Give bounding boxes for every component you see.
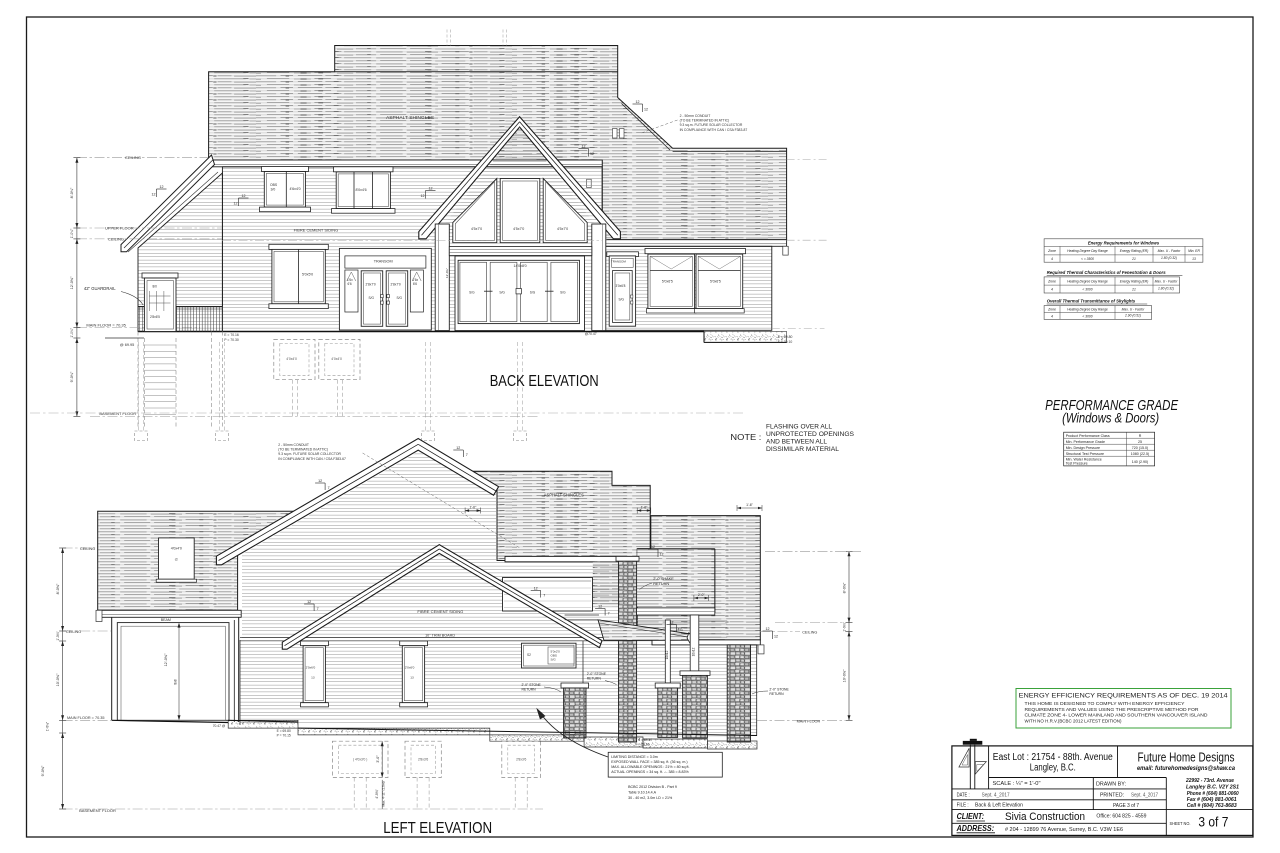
svg-text:9'-0¾": 9'-0¾" xyxy=(41,765,45,776)
svg-text:Cell # (604) 763-8683: Cell # (604) 763-8683 xyxy=(1187,803,1237,809)
svg-text:9.3 sq.m. FUTURE SOLAR COLLECT: 9.3 sq.m. FUTURE SOLAR COLLECTOR xyxy=(680,123,743,127)
svg-text:1'-6": 1'-6" xyxy=(470,506,478,510)
svg-text:12: 12 xyxy=(590,152,594,156)
svg-text:5'0x6'5: 5'0x6'5 xyxy=(710,280,721,284)
svg-text:10'-0¾": 10'-0¾" xyxy=(843,669,847,682)
svg-text:1'-0¼": 1'-0¼" xyxy=(56,631,60,641)
svg-text:LIMITING DISTANCE = 3.0m: LIMITING DISTANCE = 3.0m xyxy=(611,755,658,759)
svg-text:4: 4 xyxy=(1051,257,1053,261)
svg-text:13: 13 xyxy=(1192,257,1196,261)
svg-text:9'-0¼": 9'-0¼" xyxy=(70,371,74,382)
svg-text:14'0x8'0: 14'0x8'0 xyxy=(514,264,527,268)
svg-text:(TO BE TERMINATED IN ATTIC): (TO BE TERMINATED IN ATTIC) xyxy=(278,448,328,452)
svg-text:FLASHING OVER ALL: FLASHING OVER ALL xyxy=(766,423,832,430)
svg-text:6'6: 6'6 xyxy=(348,282,352,286)
svg-text:5'0x6'5: 5'0x6'5 xyxy=(662,280,673,284)
svg-text:FIBRE CEMENT SIDING: FIBRE CEMENT SIDING xyxy=(294,228,339,233)
svg-text:Min. ER: Min. ER xyxy=(1188,249,1200,253)
svg-text:(Windows & Doors): (Windows & Doors) xyxy=(1062,411,1159,426)
svg-text:P = 70.15: P = 70.15 xyxy=(277,734,291,738)
svg-text:12: 12 xyxy=(242,194,246,198)
svg-text:THIS HOME IS DESIGNED TO COMPL: THIS HOME IS DESIGNED TO COMPLY WITH ENE… xyxy=(1025,701,1185,706)
svg-text:UNPROTECTED OPENINGS: UNPROTECTED OPENINGS xyxy=(766,431,855,438)
svg-text:1'-6": 1'-6" xyxy=(641,506,649,510)
svg-text:E = 69.80: E = 69.80 xyxy=(277,729,291,733)
svg-text:2'-0" STONE: 2'-0" STONE xyxy=(522,683,542,687)
svg-text:1'-0¼": 1'-0¼" xyxy=(70,327,74,337)
svg-text:Office: 604 825 - 4559: Office: 604 825 - 4559 xyxy=(1096,814,1146,820)
svg-text:3 of 7: 3 of 7 xyxy=(1198,813,1228,829)
svg-text:6'6: 6'6 xyxy=(413,282,417,286)
svg-text:12: 12 xyxy=(582,145,586,149)
svg-text:MAX. ALLOWABLE OPENINGS : 21%: MAX. ALLOWABLE OPENINGS : 21% = 80 sq.ft… xyxy=(611,765,689,769)
svg-text:email: futurehomedesigns@shaw.: email: futurehomedesigns@shaw.ca xyxy=(1137,765,1235,772)
svg-text:Energy Requirements for Window: Energy Requirements for Windows xyxy=(1088,241,1160,246)
svg-text:IN COMPLIANCE WITH CAN / CSA F: IN COMPLIANCE WITH CAN / CSA F383-67 xyxy=(278,457,346,461)
svg-text:@ 69.95: @ 69.95 xyxy=(120,343,134,347)
svg-text:Overall Thermal Transmittance: Overall Thermal Transmittance of Skyligh… xyxy=(1047,299,1136,304)
svg-text:S/G: S/G xyxy=(551,658,557,662)
svg-text:Back & Left Elevation: Back & Left Elevation xyxy=(975,803,1023,809)
svg-text:8'-0¾": 8'-0¾" xyxy=(843,582,847,593)
svg-text:Langley B.C. V2Y 2S1: Langley B.C. V2Y 2S1 xyxy=(1186,784,1239,790)
svg-text:10x12: 10x12 xyxy=(665,650,669,659)
svg-text:SCALE : ¼" = 1'-0": SCALE : ¼" = 1'-0" xyxy=(993,781,1041,787)
svg-text:MAIN FLOOR: MAIN FLOOR xyxy=(797,719,821,723)
svg-text:S/G: S/G xyxy=(397,296,403,300)
svg-text:East Lot : 21754 - 88th. Avenu: East Lot : 21754 - 88th. Avenue xyxy=(993,752,1113,763)
svg-text:IN COMPLIANCE WITH CAN / CSA F: IN COMPLIANCE WITH CAN / CSA F383-87 xyxy=(680,128,748,132)
svg-text:10'-0¾": 10'-0¾" xyxy=(56,673,60,686)
svg-text:22992 - 73rd. Avenue: 22992 - 73rd. Avenue xyxy=(1185,778,1234,784)
svg-text:T 4 = 69.57: T 4 = 69.57 xyxy=(636,738,653,742)
svg-text:2'8x3'6: 2'8x3'6 xyxy=(516,758,526,762)
svg-text:1'-6": 1'-6" xyxy=(746,503,754,507)
svg-text:4'5x7'0: 4'5x7'0 xyxy=(513,227,524,231)
svg-text:S/G: S/G xyxy=(530,291,536,295)
svg-text:12'-0¾": 12'-0¾" xyxy=(70,276,74,289)
svg-text:2 - 50mm CONDUIT: 2 - 50mm CONDUIT xyxy=(278,443,309,447)
svg-text:12'-0¾": 12'-0¾" xyxy=(445,268,449,278)
svg-text:12: 12 xyxy=(598,605,602,609)
svg-text:FILE :: FILE : xyxy=(957,803,969,809)
svg-text:Product Performance Class: Product Performance Class xyxy=(1066,434,1110,438)
svg-text:1'-0¼": 1'-0¼" xyxy=(70,228,74,238)
svg-text:CLIMATE ZONE 4- LOWER MAINLAND: CLIMATE ZONE 4- LOWER MAINLAND AND SOUTH… xyxy=(1025,713,1209,718)
svg-text:# 204 - 12899 76 Avenue, Surr: # 204 - 12899 76 Avenue, Surrey, B.C. V3… xyxy=(1005,827,1123,833)
svg-text:1'-0¼": 1'-0¼" xyxy=(46,721,50,731)
svg-text:1'-0¼": 1'-0¼" xyxy=(843,622,847,632)
svg-text:720 (15.0): 720 (15.0) xyxy=(1132,446,1148,450)
svg-text:2'-0"SHAKE: 2'-0"SHAKE xyxy=(653,577,674,581)
svg-text:3/0: 3/0 xyxy=(271,187,276,191)
svg-text:P = 70.30: P = 70.30 xyxy=(224,338,239,342)
svg-text:13: 13 xyxy=(410,676,414,680)
svg-text:2'8x7'0: 2'8x7'0 xyxy=(366,282,376,286)
svg-text:RETURN: RETURN xyxy=(653,582,669,586)
svg-text:12: 12 xyxy=(456,446,460,450)
svg-text:8/0: 8/0 xyxy=(153,285,158,289)
svg-text:12: 12 xyxy=(660,553,664,557)
svg-text:OBS: OBS xyxy=(270,183,278,187)
svg-text:RETURN: RETURN xyxy=(587,676,602,680)
svg-text:EXPOSED WALL FACE = 385 sq. ft: EXPOSED WALL FACE = 385 sq. ft. (36 sq. … xyxy=(611,760,687,764)
svg-text:10x12: 10x12 xyxy=(692,647,696,656)
svg-text:BASEMENT FLOOR: BASEMENT FLOOR xyxy=(79,808,116,813)
svg-text:4'0x4'0: 4'0x4'0 xyxy=(331,357,342,361)
svg-text:70.47 @: 70.47 @ xyxy=(213,724,226,728)
svg-text:S/G: S/G xyxy=(469,291,475,295)
svg-text:BCBC 2012 Division B - Part 9: BCBC 2012 Division B - Part 9 xyxy=(628,785,677,789)
svg-text:10" TRIM BOARD: 10" TRIM BOARD xyxy=(425,634,455,638)
svg-text:LEFT ELEVATION: LEFT ELEVATION xyxy=(383,820,492,837)
svg-text:21: 21 xyxy=(1131,288,1136,292)
svg-text:Required Thermal Characteristi: Required Thermal Characteristics of Fene… xyxy=(1047,270,1167,275)
svg-text:Zone: Zone xyxy=(1047,249,1056,253)
svg-text:NOTE :: NOTE : xyxy=(730,432,761,442)
svg-text:Heating Degree Day Range: Heating Degree Day Range xyxy=(1067,249,1108,253)
svg-text:Heating Degree Day Range: Heating Degree Day Range xyxy=(1067,280,1108,284)
svg-text:42" GUARDRAIL: 42" GUARDRAIL xyxy=(84,286,116,291)
svg-text:@: @ xyxy=(175,558,179,562)
svg-text:Heating Degree Day Range: Heating Degree Day Range xyxy=(1067,307,1108,311)
svg-text:Max. U - Factor: Max. U - Factor xyxy=(1155,280,1179,284)
svg-text:Langley, B.C.: Langley, B.C. xyxy=(1030,763,1076,774)
svg-text:Sept. 4_2017: Sept. 4_2017 xyxy=(1131,793,1158,799)
svg-text:Sept. 4_2017: Sept. 4_2017 xyxy=(982,792,1010,798)
svg-text:< = 3500: < = 3500 xyxy=(1081,257,1094,261)
svg-text:S/G: S/G xyxy=(369,296,375,300)
svg-text:2'-0" STONE: 2'-0" STONE xyxy=(769,688,789,692)
svg-text:12'-0¾": 12'-0¾" xyxy=(164,653,168,666)
svg-text:BASEMENT FLOOR: BASEMENT FLOOR xyxy=(99,411,136,416)
svg-text:140 (2.90): 140 (2.90) xyxy=(1132,460,1148,464)
svg-text:Zone: Zone xyxy=(1047,280,1056,284)
svg-text:SHEET NO.: SHEET NO. xyxy=(1170,821,1191,826)
svg-text:12: 12 xyxy=(636,100,640,104)
svg-text:9.3 sq.m. FUTURE SOLAR COLLECT: 9.3 sq.m. FUTURE SOLAR COLLECTOR xyxy=(278,452,341,456)
svg-text:ASPHALT SHINGLES: ASPHALT SHINGLES xyxy=(386,115,434,120)
svg-text:@70.47: @70.47 xyxy=(585,332,597,336)
svg-text:4'6x4'0: 4'6x4'0 xyxy=(290,187,301,191)
svg-text:E = 70.16: E = 70.16 xyxy=(224,333,239,337)
svg-text:4: 4 xyxy=(1051,288,1053,292)
svg-text:7: 7 xyxy=(328,486,330,490)
svg-text:2'0x6'0: 2'0x6'0 xyxy=(405,666,415,670)
svg-text:1080 (22.5): 1080 (22.5) xyxy=(1131,452,1149,456)
svg-text:12: 12 xyxy=(644,108,648,112)
svg-text:Energy Rating (ER): Energy Rating (ER) xyxy=(1120,280,1149,284)
svg-text:2'8x6'5: 2'8x6'5 xyxy=(150,315,160,319)
svg-text:F = 69.66: F = 69.66 xyxy=(636,743,650,747)
svg-text:2 - 50mm CONDUIT: 2 - 50mm CONDUIT xyxy=(680,114,711,118)
svg-text:CLIENT:: CLIENT: xyxy=(957,811,985,821)
svg-text:S/G: S/G xyxy=(619,298,625,302)
svg-text:CEILING: CEILING xyxy=(802,630,817,634)
svg-text:S/G: S/G xyxy=(560,291,566,295)
svg-text:DATE :: DATE : xyxy=(957,792,970,798)
svg-text:12: 12 xyxy=(766,627,770,631)
svg-text:CEILING: CEILING xyxy=(125,155,141,160)
svg-text:(TO BE TERMINATED IN ATTIC): (TO BE TERMINATED IN ATTIC) xyxy=(680,119,730,123)
svg-text:Max. 4'-11" (1.5m): Max. 4'-11" (1.5m) xyxy=(382,781,386,806)
svg-text:Min. Performance Grade: Min. Performance Grade xyxy=(1066,440,1105,444)
svg-text:S/G: S/G xyxy=(499,291,505,295)
svg-text:MAIN FLOOR = 70.35: MAIN FLOOR = 70.35 xyxy=(86,323,126,328)
svg-text:7: 7 xyxy=(608,612,610,616)
svg-text:2.90 (0.51): 2.90 (0.51) xyxy=(1124,313,1141,317)
svg-text:30 - 40 m2, 3.0m LD = 21%: 30 - 40 m2, 3.0m LD = 21% xyxy=(628,796,673,800)
svg-text:8'-0¾": 8'-0¾" xyxy=(56,583,60,594)
svg-text:12: 12 xyxy=(651,545,655,549)
svg-text:RETURN: RETURN xyxy=(522,688,537,692)
svg-text:TRANSOM: TRANSOM xyxy=(611,260,627,264)
svg-text:12: 12 xyxy=(421,194,425,198)
svg-text:4'0x4'0: 4'0x4'0 xyxy=(171,547,182,551)
svg-text:FIBRE CEMENT SIDING: FIBRE CEMENT SIDING xyxy=(417,609,463,614)
svg-text:Table 9.10.14.4.A: Table 9.10.14.4.A xyxy=(628,791,657,795)
svg-text:PAGE 3 of 7: PAGE 3 of 7 xyxy=(1113,803,1139,809)
svg-text:ASPHALT SHINGLES: ASPHALT SHINGLES xyxy=(544,493,584,498)
svg-text:4'5x7'0: 4'5x7'0 xyxy=(557,227,568,231)
svg-text:ADDRESS:: ADDRESS: xyxy=(956,823,995,833)
svg-text:3'0x6'8: 3'0x6'8 xyxy=(616,284,626,288)
svg-text:ENERGY EFFICIENCY REQUIREMEN: ENERGY EFFICIENCY REQUIREMENTS AS OF DEC… xyxy=(1019,692,1228,699)
svg-text:Structural Test Pressure: Structural Test Pressure xyxy=(1066,452,1104,456)
svg-text:12: 12 xyxy=(774,635,778,639)
svg-text:12: 12 xyxy=(234,202,238,206)
svg-text:4: 4 xyxy=(1051,314,1053,318)
svg-text:R: R xyxy=(1139,434,1142,438)
svg-text:3'-0": 3'-0" xyxy=(376,755,380,763)
svg-text:4'5x7'0: 4'5x7'0 xyxy=(471,227,482,231)
svg-text:F = 70.10: F = 70.10 xyxy=(778,340,793,344)
svg-text:Energy Rating (ER): Energy Rating (ER) xyxy=(1120,249,1149,253)
svg-text:12: 12 xyxy=(429,187,433,191)
svg-text:BEAM: BEAM xyxy=(161,618,171,622)
svg-text:Min. Design Pressure: Min. Design Pressure xyxy=(1066,446,1100,450)
svg-text:8'0x4'6: 8'0x4'6 xyxy=(356,188,367,192)
svg-text:MAIN FLOOR = 70.35: MAIN FLOOR = 70.35 xyxy=(67,716,104,720)
svg-text:E = 69.80: E = 69.80 xyxy=(778,335,793,339)
svg-text:8'-0¼": 8'-0¼" xyxy=(70,187,74,198)
svg-text:8x8: 8x8 xyxy=(174,679,178,684)
svg-text:12: 12 xyxy=(160,185,164,189)
svg-text:DRAWN BY:: DRAWN BY: xyxy=(1096,782,1126,788)
svg-text:Fax # (604) 881-0061: Fax # (604) 881-0061 xyxy=(1187,797,1237,803)
svg-text:RETURN: RETURN xyxy=(769,692,784,696)
svg-text:1.80 (0.32): 1.80 (0.32) xyxy=(1161,256,1177,260)
svg-text:TRANSOM: TRANSOM xyxy=(374,259,393,263)
svg-text:5'0x5'0: 5'0x5'0 xyxy=(302,273,313,277)
svg-text:WITH NO H.R.V.(BCBC 2012 LATES: WITH NO H.R.V.(BCBC 2012 LATEST EDITION) xyxy=(1025,718,1122,723)
svg-text:Max. U - Factor: Max. U - Factor xyxy=(1122,307,1146,311)
svg-text:7: 7 xyxy=(317,607,319,611)
svg-text:( 4'0x3'0 ): ( 4'0x3'0 ) xyxy=(353,758,367,762)
svg-text:REQUIREMENTS AND VALUES USING: REQUIREMENTS AND VALUES USING THE PRESCR… xyxy=(1025,707,1200,712)
svg-text:12: 12 xyxy=(152,193,156,197)
svg-text:4'-9¾": 4'-9¾" xyxy=(375,789,379,799)
svg-text:4'0x4'0: 4'0x4'0 xyxy=(286,357,297,361)
svg-text:7: 7 xyxy=(466,453,468,457)
svg-text:DISSIMILAR MATERIAL: DISSIMILAR MATERIAL xyxy=(766,446,839,453)
svg-text:ACTUAL OPENINGS = 34 sq. ft. -: ACTUAL OPENINGS = 34 sq. ft. -:- 385 = 8… xyxy=(611,770,689,774)
svg-text:< 3000: < 3000 xyxy=(1082,288,1092,292)
svg-text:Phone # (604) 881-0060: Phone # (604) 881-0060 xyxy=(1187,791,1239,797)
svg-text:12: 12 xyxy=(318,479,322,483)
svg-text:Zone: Zone xyxy=(1047,307,1056,311)
svg-text:12: 12 xyxy=(670,621,674,625)
svg-text:2'-0" STONE: 2'-0" STONE xyxy=(587,672,607,676)
svg-text:2'-0": 2'-0" xyxy=(698,593,706,597)
svg-text:12: 12 xyxy=(307,600,311,604)
svg-text:CEILING: CEILING xyxy=(108,237,124,242)
svg-text:CEILING: CEILING xyxy=(66,630,81,634)
svg-text:25: 25 xyxy=(1138,440,1142,444)
svg-text:2'8x7'0: 2'8x7'0 xyxy=(391,282,401,286)
svg-text:S2: S2 xyxy=(527,653,531,657)
svg-text:CEILING: CEILING xyxy=(80,547,95,551)
svg-text:1.80 (0.32): 1.80 (0.32) xyxy=(1158,287,1174,291)
svg-text:21: 21 xyxy=(1131,257,1136,261)
svg-text:12: 12 xyxy=(534,587,538,591)
svg-text:2'0x6'0: 2'0x6'0 xyxy=(306,666,316,670)
svg-text:Max. U - Factor: Max. U - Factor xyxy=(1158,249,1182,253)
svg-text:BACK ELEVATION: BACK ELEVATION xyxy=(490,373,599,390)
svg-text:Future Home Designs: Future Home Designs xyxy=(1138,750,1235,765)
svg-text:Sivia Construction: Sivia Construction xyxy=(1005,811,1085,823)
svg-text:2'8x3'6: 2'8x3'6 xyxy=(418,758,428,762)
svg-text:13: 13 xyxy=(311,676,315,680)
svg-text:Test Pressure: Test Pressure xyxy=(1066,462,1088,466)
svg-text:PRINTED:: PRINTED: xyxy=(1100,793,1124,799)
svg-text:7: 7 xyxy=(543,594,545,598)
svg-text:UPPER FLOOR: UPPER FLOOR xyxy=(105,226,134,231)
svg-text:AND BETWEEN ALL: AND BETWEEN ALL xyxy=(766,438,827,445)
svg-text:< 3000: < 3000 xyxy=(1082,314,1092,318)
